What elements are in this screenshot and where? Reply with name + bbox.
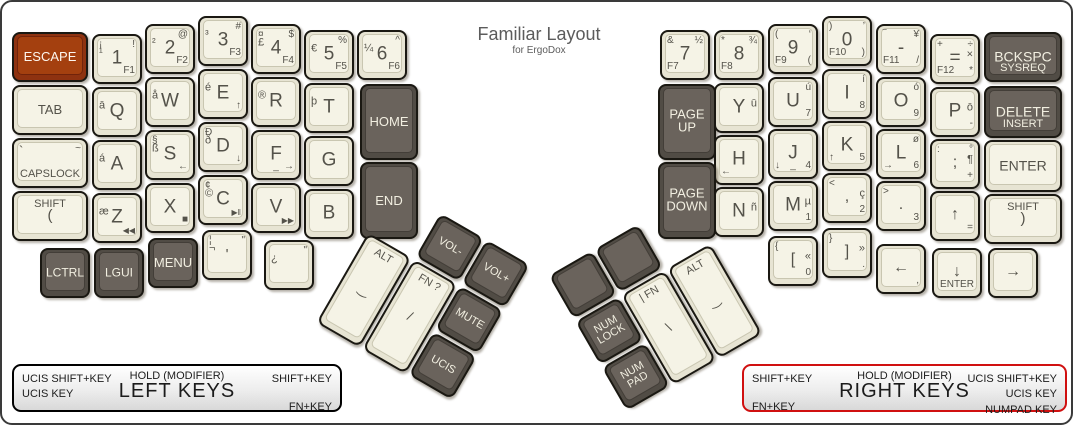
key-comma-label-mr: ç <box>860 189 866 200</box>
key-z[interactable]: Zæ◀◀ <box>92 193 142 243</box>
key-k[interactable]: K↑5 <box>822 121 872 171</box>
key-6-label-br: F6 <box>388 62 400 72</box>
key-arrow-down-label-c: ↓ <box>936 264 978 280</box>
key-5-label-br: F5 <box>335 62 347 72</box>
key-enter[interactable]: ENTER <box>984 140 1062 192</box>
key-rbracket[interactable]: ]}». <box>822 228 872 278</box>
key-pagedown[interactable]: PAGE DOWN <box>658 162 716 239</box>
key-j-label-br: 4 <box>805 161 811 171</box>
key-inv-question-label-tr: " <box>303 246 307 256</box>
key-9-label-tr: ‘ <box>809 30 811 40</box>
key-3-label-br: F3 <box>229 48 241 58</box>
key-d-label-ml: ð <box>205 136 211 147</box>
key-s-label-ml: ß <box>152 144 159 155</box>
key-x[interactable]: X■ <box>145 183 195 233</box>
key-c[interactable]: C¢©▶‖ <box>198 175 248 225</box>
legend-right-ucis-column: UCIS SHIFT+KEY UCIS KEY NUMPAD KEY <box>967 372 1057 418</box>
key-z-label-br: ◀◀ <box>123 227 135 235</box>
key-g[interactable]: G <box>304 136 354 186</box>
key-e-label-ml: é <box>205 83 211 94</box>
key-bckspc-label-b: SYSREQ <box>986 63 1060 74</box>
key-delete-label-c: DELETE <box>988 104 1058 118</box>
key-4-label-tr: $ <box>288 30 294 40</box>
key-f-label-br: → <box>284 162 294 172</box>
key-0[interactable]: 0)’F10) <box>822 16 872 66</box>
key-q[interactable]: Qā <box>92 87 142 137</box>
key-1-label-ml: ¹ <box>99 48 103 59</box>
key-equals[interactable]: =+÷×F12* <box>930 34 980 84</box>
key-enter-label-c: ENTER <box>988 158 1058 172</box>
key-end[interactable]: END <box>360 162 418 239</box>
key-lctrl[interactable]: LCTRL <box>40 248 90 298</box>
key-semicolon-label-br: + <box>967 171 973 181</box>
key-quote-label-ml: ¬ <box>209 244 215 255</box>
key-n-label-mr: ñ <box>751 203 757 214</box>
key-b[interactable]: B <box>304 189 354 239</box>
key-lbracket-label-br: 0 <box>805 268 811 278</box>
key-5-label-ml: € <box>311 44 317 55</box>
key-0-label-tr: ’ <box>863 22 865 32</box>
key-1-label-tr: ! <box>132 40 135 50</box>
key-9-label-br: ( <box>808 56 811 66</box>
key-3[interactable]: 3³#F3 <box>198 16 248 66</box>
key-capslock-label-tl: ` <box>19 144 23 157</box>
key-t[interactable]: Tþ <box>304 83 354 133</box>
key-lgui[interactable]: LGUI <box>94 248 144 298</box>
key-capslock-label-b: CAPSLOCK <box>14 169 86 180</box>
key-r-label-ml: ® <box>258 91 266 102</box>
key-c-label-ml: © <box>205 189 213 200</box>
key-arrow-left-label-c: ← <box>880 260 922 276</box>
key-3-label-tr: # <box>235 22 241 32</box>
key-m-label-mr: µ <box>805 197 811 208</box>
key-1-label-br: F1 <box>123 66 135 76</box>
legend-label: FN+KEY <box>272 400 332 415</box>
key-arrow-down[interactable]: ↓ENTER <box>932 248 982 298</box>
key-u[interactable]: Uú7 <box>768 77 818 127</box>
key-w[interactable]: Wå <box>145 77 195 127</box>
key-rbracket-label-mr: » <box>859 244 865 255</box>
key-delete[interactable]: DELETEINSERT <box>984 86 1062 138</box>
key-arrow-left-label-br: , <box>916 276 919 286</box>
key-inv-question-label-ml: ¿ <box>271 254 278 265</box>
key-pageup[interactable]: PAGE UP <box>658 84 716 160</box>
key-rbracket-label-tl: } <box>829 234 832 244</box>
key-c-label-br: ▶‖ <box>232 209 241 217</box>
key-up-label-br: = <box>967 223 973 233</box>
legend-label: UCIS SHIFT+KEY <box>967 372 1057 387</box>
key-home-label-c: HOME <box>364 115 414 128</box>
key-equals-label-tl: + <box>937 40 943 50</box>
key-0-label-bl: F10 <box>829 48 846 58</box>
key-2-label-ml: ² <box>152 38 156 49</box>
key-period-label-tl: > <box>883 187 889 197</box>
key-v-label-br: ▶▶ <box>282 217 294 225</box>
key-r[interactable]: R® <box>251 77 301 127</box>
key-8-label-tr: ¾ <box>749 36 757 46</box>
legend-label: SHIFT+KEY <box>272 372 332 387</box>
key-u-label-br: 7 <box>805 109 811 119</box>
key-t-label-ml: þ <box>311 97 317 108</box>
key-7-label-tl: & <box>667 36 674 46</box>
key-lshift[interactable]: SHIFT( <box>12 191 88 241</box>
key-7[interactable]: 7&½F7 <box>660 30 710 80</box>
legend-left-shift-column: SHIFT+KEY FN+KEY <box>272 372 332 416</box>
layout-title-main: Familiar Layout <box>439 24 639 45</box>
key-rshift-label-c: ) <box>988 211 1058 226</box>
key-7-label-bl: F7 <box>667 62 679 72</box>
key-f[interactable]: F_→ <box>251 130 301 180</box>
key-arrow-right-label-c: → <box>992 264 1034 280</box>
legend-label: NUMPAD KEY <box>967 403 1057 418</box>
key-2-label-br: F2 <box>176 56 188 66</box>
key-quote-label-tr: " <box>241 236 245 246</box>
key-minus[interactable]: -‾¥F11/ <box>876 24 926 74</box>
key-capslock[interactable]: `~CAPSLOCK <box>12 138 88 188</box>
key-arrow-right[interactable]: → <box>988 248 1038 298</box>
key-period[interactable]: .>3 <box>876 181 926 231</box>
key-h-label-bl: ← <box>721 167 731 177</box>
legend-left-keys: UCIS SHIFT+KEY UCIS KEY HOLD (MODIFIER) … <box>12 364 342 412</box>
key-pagedown-label-c: PAGE DOWN <box>662 186 712 212</box>
key-l-label-br: 6 <box>913 161 919 171</box>
key-g-label-c: G <box>308 151 350 170</box>
key-lctrl-label-c: LCTRL <box>44 266 86 278</box>
key-m[interactable]: Mµ1 <box>768 181 818 231</box>
key-9-label-tl: ( <box>775 30 778 40</box>
key-j[interactable]: J↓_4 <box>768 129 818 179</box>
keyboard-layout-frame: Familiar Layout for ErgoDox ESCAPE1¡¹!F1… <box>0 0 1073 425</box>
key-thumb-blank-1-cap <box>555 257 609 311</box>
key-home[interactable]: HOME <box>360 84 418 160</box>
key-a-label-ml: á <box>99 154 105 165</box>
key-p-label-br: - <box>970 119 973 129</box>
key-8[interactable]: 8*¾F8 <box>714 30 764 80</box>
key-semicolon[interactable]: ;:°¶+ <box>930 139 980 189</box>
key-6[interactable]: 6¼^F6 <box>357 30 407 80</box>
key-equals-label-br: * <box>969 66 973 76</box>
key-semicolon-label-tl: : <box>937 145 940 155</box>
key-k-label-br: 5 <box>859 153 865 163</box>
key-arrow-down-label-b: ENTER <box>934 280 980 290</box>
key-lbracket[interactable]: [{«0 <box>768 236 818 286</box>
key-s-label-br: ← <box>178 162 188 172</box>
key-thumb-blank-2-cap <box>601 230 655 284</box>
key-m-label-br: 1 <box>805 213 811 223</box>
key-lgui-label-c: LGUI <box>98 266 140 278</box>
key-o[interactable]: Oó9 <box>876 77 926 127</box>
key-comma-label-br: 2 <box>859 205 865 215</box>
key-k-label-bl: ↑ <box>829 153 834 163</box>
key-u-label-tr: ú <box>805 83 811 93</box>
key-arrow-left[interactable]: ←, <box>876 244 926 294</box>
key-q-label-ml: ā <box>99 101 105 112</box>
key-rshift[interactable]: SHIFT) <box>984 194 1062 244</box>
key-comma-label-tl: < <box>829 179 835 189</box>
key-v-label-c: V <box>255 198 297 217</box>
key-quote[interactable]: '¦¬" <box>202 230 252 280</box>
key-inv-question[interactable]: ¿" <box>264 240 314 290</box>
key-e-label-br: ↑ <box>236 101 241 111</box>
key-up[interactable]: ↑= <box>930 191 980 241</box>
key-b-label-c: B <box>308 204 350 223</box>
key-3-label-ml: ³ <box>205 30 209 41</box>
key-z-label-ml: æ <box>99 207 109 218</box>
key-rbracket-label-br: . <box>862 260 865 270</box>
key-d-label-br: ↓ <box>236 154 241 164</box>
key-5[interactable]: 5€%F5 <box>304 30 354 80</box>
key-equals-label-bl: F12 <box>937 66 954 76</box>
key-d[interactable]: DÐð↓ <box>198 122 248 172</box>
key-minus-label-tl: ‾ <box>883 30 886 40</box>
key-s[interactable]: S§ß← <box>145 130 195 180</box>
key-1[interactable]: 1¡¹!F1 <box>92 34 142 84</box>
key-lbracket-label-mr: « <box>805 252 811 263</box>
key-n[interactable]: Nñ <box>714 187 764 237</box>
key-i[interactable]: Ií8 <box>822 69 872 119</box>
key-equals-label-mr: × <box>967 50 973 61</box>
key-i-label-tr: í <box>862 75 865 85</box>
key-v[interactable]: V▶▶ <box>251 183 301 233</box>
key-4-label-ml: £ <box>258 38 264 49</box>
key-p-label-mr: ō <box>967 103 973 114</box>
key-2[interactable]: 2²@F2 <box>145 24 195 74</box>
key-8-label-tl: * <box>721 36 725 46</box>
key-i-label-br: 8 <box>859 101 865 111</box>
key-minus-label-br: / <box>916 56 919 66</box>
key-l-label-bl: → <box>883 161 893 171</box>
key-escape[interactable]: ESCAPE <box>12 32 88 82</box>
key-delete-label-b: INSERT <box>986 119 1060 130</box>
key-end-label-c: END <box>364 193 414 206</box>
key-0-label-br: ) <box>862 48 865 58</box>
key-tab-label-c: TAB <box>16 103 84 116</box>
key-o-label-tr: ó <box>913 83 919 93</box>
key-6-label-ml: ¼ <box>364 44 373 55</box>
legend-right-keys: SHIFT+KEY FN+KEY HOLD (MODIFIER) RIGHT K… <box>742 364 1067 412</box>
key-6-label-tr: ^ <box>395 36 400 46</box>
key-4[interactable]: 4¤£$F4 <box>251 24 301 74</box>
key-9-label-bl: F9 <box>775 56 787 66</box>
layout-title: Familiar Layout for ErgoDox <box>439 24 639 56</box>
layout-title-sub: for ErgoDox <box>439 45 639 56</box>
key-5-label-tr: % <box>338 36 347 46</box>
key-period-label-br: 3 <box>913 213 919 223</box>
key-menu-label-c: MENU <box>152 256 194 269</box>
key-semicolon-label-mr: ¶ <box>967 155 973 166</box>
key-h[interactable]: H← <box>714 135 764 185</box>
key-0-label-tl: ) <box>829 22 832 32</box>
key-w-label-ml: å <box>152 91 158 102</box>
key-escape-label-c: ESCAPE <box>16 50 84 63</box>
key-minus-label-bl: F11 <box>883 56 900 66</box>
key-y[interactable]: Yū <box>714 83 764 133</box>
key-p[interactable]: Pō- <box>930 87 980 137</box>
key-8-label-bl: F8 <box>721 62 733 72</box>
key-2-label-tr: @ <box>178 30 188 40</box>
key-y-label-mr: ū <box>751 99 757 110</box>
key-o-label-br: 9 <box>913 109 919 119</box>
key-comma[interactable]: ,<ç2 <box>822 173 872 223</box>
key-a[interactable]: Aá <box>92 140 142 190</box>
key-l[interactable]: Lø→6 <box>876 129 926 179</box>
key-menu[interactable]: MENU <box>148 238 198 288</box>
key-up-label-c: ↑ <box>934 207 976 223</box>
key-lshift-label-c: ( <box>16 208 84 223</box>
key-7-label-tr: ½ <box>695 36 703 46</box>
key-pageup-label-c: PAGE UP <box>662 108 712 134</box>
key-tab[interactable]: TAB <box>12 85 88 135</box>
key-capslock-label-tr: ~ <box>75 144 81 154</box>
key-lbracket-label-tl: { <box>775 242 778 252</box>
legend-label: UCIS KEY <box>967 387 1057 402</box>
key-9[interactable]: 9(‘F9( <box>768 24 818 74</box>
key-4-label-br: F4 <box>282 56 294 66</box>
key-l-label-tr: ø <box>913 135 919 145</box>
key-period-label-c: . <box>880 197 922 213</box>
key-minus-label-tr: ¥ <box>913 30 919 40</box>
key-x-label-br: ■ <box>182 215 188 225</box>
key-bckspc[interactable]: BCKSPCSYSREQ <box>984 32 1062 82</box>
key-e[interactable]: Eé↑ <box>198 69 248 119</box>
